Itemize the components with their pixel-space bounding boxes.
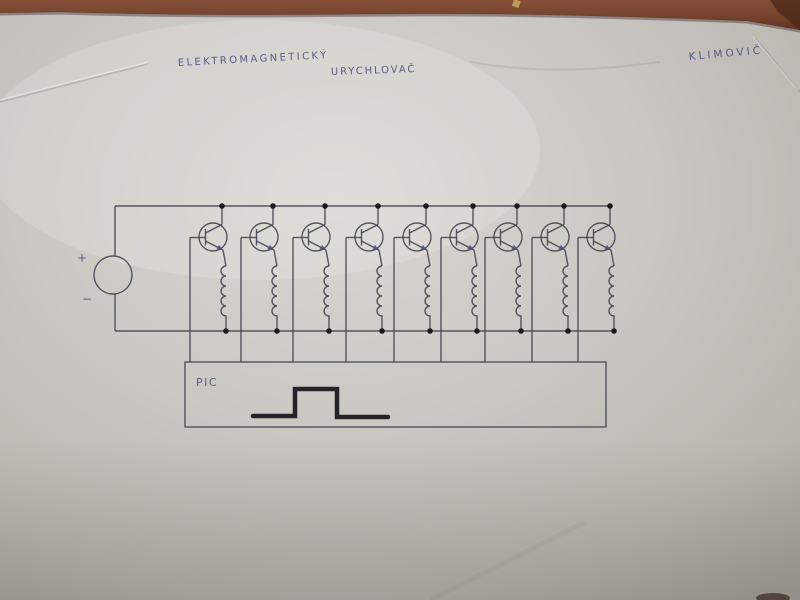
- photo-canvas: ELEKTROMAGNETICKÝ URYCHLOVAČ KLIMOVIČ PI…: [0, 0, 800, 600]
- photo-of-hand-drawn-schematic: ELEKTROMAGNETICKÝ URYCHLOVAČ KLIMOVIČ PI…: [0, 0, 800, 600]
- source-plus-sign: +: [77, 251, 87, 265]
- source-minus-sign: −: [82, 292, 92, 306]
- pic-label: PIC: [196, 376, 218, 389]
- paper-bottom-shadow: [0, 440, 800, 600]
